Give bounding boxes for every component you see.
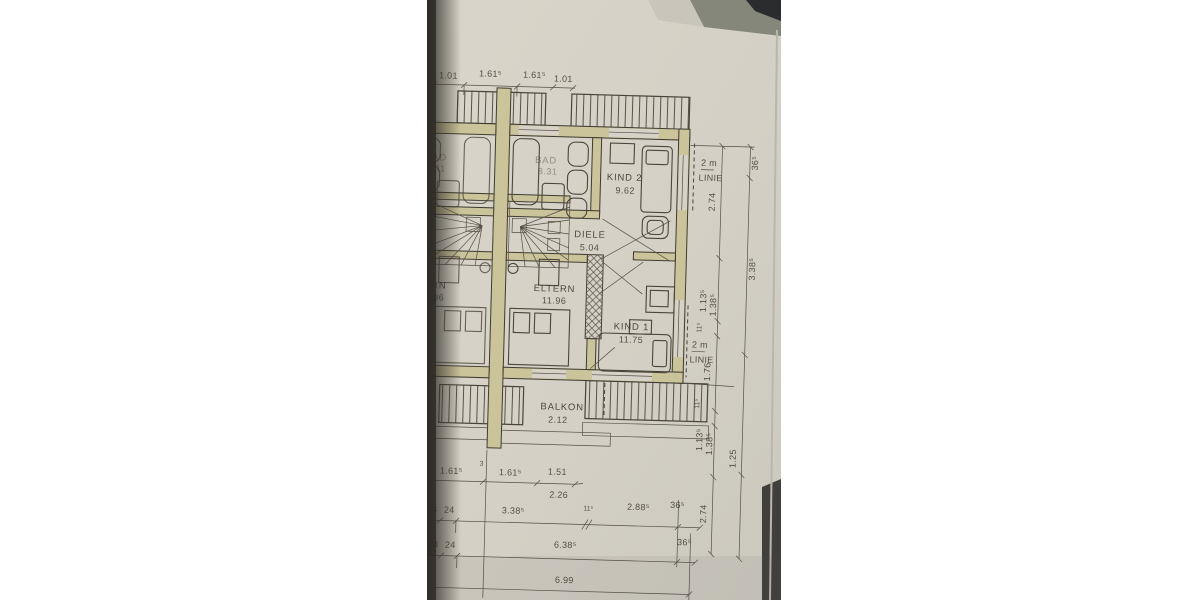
dim-label: 2.74 [707, 192, 718, 211]
room-area-bad: 8.31 [538, 166, 558, 177]
dim-label: 36⁵ [750, 156, 760, 171]
dim-label: 1.13⁵ [698, 289, 709, 312]
room-label-balkon: BALKON [540, 401, 584, 413]
dim-label: 36⁵ [677, 537, 692, 547]
room-label-diele: DIELE [574, 229, 606, 241]
room-area-diele: 5.04 [580, 242, 600, 253]
dim-label: 2.74 [698, 504, 709, 523]
dim-label: 1.38⁵ [708, 294, 719, 317]
dim-label: 36⁵ [670, 500, 685, 510]
dim-label: 3.38⁵ [747, 258, 758, 281]
dim-label: 1.61⁵ [523, 70, 546, 81]
dim-label: 1.61⁵ [499, 467, 522, 478]
dim-label: 3.38⁵ [502, 505, 525, 516]
dim-label: 6.38⁵ [554, 540, 577, 551]
paper [427, 0, 781, 600]
photo-of-floor-plan: { "photo": { "description": "photo of ar… [0, 0, 1200, 600]
room-label-eltern: ELTERN [534, 283, 576, 295]
room-label-kind2: KIND 2 [607, 172, 643, 184]
photo: 1.01 1.61⁵ 1.61⁵ 1.01 [396, 0, 781, 600]
room-area-kind2: 9.62 [615, 185, 635, 196]
bottom-vignette [427, 556, 781, 600]
dim-label: 3 [479, 461, 483, 468]
dim-label: 2.26 [549, 490, 568, 501]
linie-top-text-1: 2 m [701, 158, 717, 168]
dim-label: 1.25 [728, 449, 739, 468]
dim-label: 1.01 [554, 74, 573, 85]
room-label-kind1: KIND 1 [614, 321, 650, 333]
dim-label: 11⁵ [696, 322, 703, 332]
dim-label: 1.76 [702, 362, 713, 381]
dim-label: 1.51 [548, 466, 567, 477]
room-area-balkon: 2.12 [548, 414, 568, 425]
dim-label: 1.13⁵ [694, 428, 705, 451]
left-edge-dark [427, 0, 436, 600]
linie-bottom-text-1: 2 m [692, 339, 708, 349]
room-area-eltern: 11.96 [542, 295, 567, 306]
dim-label: 1.61⁵ [479, 68, 502, 79]
room-area-kind1: 11.75 [619, 334, 644, 345]
dim-label: 11⁵ [694, 398, 701, 408]
room-label-bad: BAD [535, 155, 557, 167]
scene: 1.01 1.61⁵ 1.61⁵ 1.01 [0, 0, 1200, 600]
dim-label: 1.38⁵ [704, 432, 715, 455]
dim-label: 11⁵ [583, 505, 593, 512]
dim-label: 2.88⁵ [627, 502, 650, 513]
linie-top-text-2: LINIE [698, 173, 722, 184]
